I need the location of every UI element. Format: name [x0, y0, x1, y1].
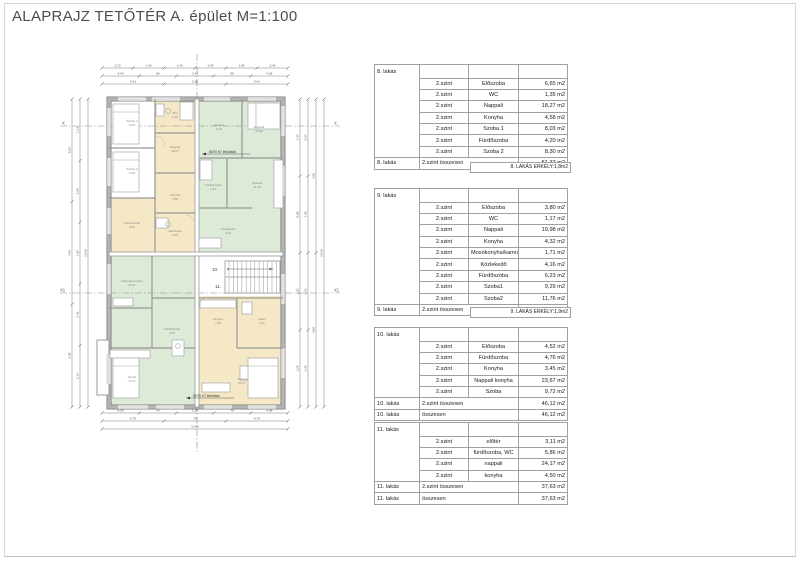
table-cell: 9,72 m2: [519, 387, 568, 398]
table-cell: 2.szint összesen: [420, 482, 519, 493]
furniture-item: [113, 152, 139, 192]
apartment-area-table: 8. lakás2.szintElőszoba6,65 m22.szintWC1…: [374, 64, 567, 170]
table-cell: Mosókonyha/kamra: [469, 248, 519, 259]
table-cell: [519, 189, 568, 203]
dimension-value: 2,88: [192, 80, 198, 84]
table-cell: előtér: [469, 436, 519, 447]
table-cell: Nappali: [469, 101, 519, 112]
table-cell: 18,27 m2: [519, 101, 568, 112]
table-cell: [375, 387, 420, 398]
table-cell: 1,71 m2: [519, 248, 568, 259]
room-area-label: 3,11: [259, 321, 265, 325]
area-table: 9. lakás2.szintElőszoba3,80 m22.szintWC1…: [374, 188, 568, 316]
dimension-value: 1,45: [238, 64, 244, 68]
table-cell: 4,16 m2: [519, 259, 568, 270]
page-title: ALAPRAJZ TETŐTÉR A. épület M=1:100: [12, 8, 297, 25]
table-cell: [469, 423, 519, 437]
table-cell: [375, 146, 420, 157]
table-cell: 10. lakás: [375, 398, 420, 409]
dimension-value: 4,65: [312, 173, 316, 179]
table-cell: [375, 352, 420, 363]
table-cell: [420, 328, 469, 342]
dimension-value: 1,45: [304, 365, 308, 371]
table-cell: [375, 293, 420, 304]
apartment-10-marker: 10.: [212, 267, 218, 272]
table-cell: Előszoba: [469, 78, 519, 89]
room-area-label: 8,03: [129, 123, 135, 127]
table-cell: 37,63 m2: [519, 493, 568, 504]
dimension-value: 5,85: [296, 211, 300, 217]
table-cell: Szoba1: [469, 282, 519, 293]
dimension-value: 70: [193, 417, 197, 421]
furniture-item: [110, 350, 150, 358]
table-cell: 4,52 m2: [519, 341, 568, 352]
table-cell: Közlekedő: [469, 259, 519, 270]
table-cell: 24,17 m2: [519, 459, 568, 470]
table-cell: 11. lakás: [375, 423, 420, 437]
table-cell: fürdőszoba, WC: [469, 447, 519, 458]
dimension-value: 1,25: [296, 365, 300, 371]
room-area-label: 19,98: [255, 129, 263, 133]
dimension-value: 3,70: [114, 64, 120, 68]
table-cell: 2.szint: [420, 375, 469, 386]
table-cell: 8,03 m2: [519, 124, 568, 135]
dimension-value: 5,41: [130, 80, 136, 84]
dimension-value: 2,43: [192, 72, 198, 76]
table-cell: Szoba 1: [469, 124, 519, 135]
table-cell: [519, 65, 568, 79]
table-cell: [375, 364, 420, 375]
table-cell: Szoba2: [469, 293, 519, 304]
table-cell: konyha: [469, 470, 519, 481]
table-cell: 2.szint: [420, 135, 469, 146]
table-cell: 8,30 m2: [519, 146, 568, 157]
table-cell: 23,67 m2: [519, 375, 568, 386]
room-area-label: 11,76: [253, 185, 261, 189]
table-cell: 2.szint: [420, 447, 469, 458]
area-table: 8. lakás2.szintElőszoba6,65 m22.szintWC1…: [374, 64, 568, 170]
table-cell: [420, 189, 469, 203]
table-cell: nappali: [469, 459, 519, 470]
dimension-value: 2,28: [76, 188, 80, 194]
table-cell: 2.szint: [420, 213, 469, 224]
table-cell: 1,17 m2: [519, 213, 568, 224]
table-cell: [375, 447, 420, 458]
table-cell: WC: [469, 89, 519, 100]
room-area-label: 6,23: [210, 187, 216, 191]
table-cell: [375, 202, 420, 213]
room-area-label: 24,17: [238, 381, 246, 385]
axis-label-x1-left: X1: [60, 288, 66, 293]
table-cell: 37,63 m2: [519, 482, 568, 493]
furniture-item: [242, 302, 252, 314]
table-cell: 2.szint: [420, 459, 469, 470]
dimension-value: 1,13: [76, 127, 80, 133]
table-cell: 2.szint: [420, 341, 469, 352]
table-cell: [375, 270, 420, 281]
table-cell: Nappali konyha: [469, 375, 519, 386]
dimension-value: 6,75: [130, 417, 136, 421]
table-cell: 2.szint: [420, 270, 469, 281]
table-cell: 2.szint: [420, 352, 469, 363]
furniture-item: [202, 383, 230, 392]
table-cell: 2.szint: [420, 436, 469, 447]
room-area-label: 4,76: [169, 331, 175, 335]
table-cell: Előszoba: [469, 202, 519, 213]
table-cell: 2.szint: [420, 387, 469, 398]
table-cell: 4,76 m2: [519, 352, 568, 363]
balcony-note: 9. LAKÁS ERKÉLY:1,9m2: [470, 307, 571, 318]
dimension-value: 4,28: [266, 72, 272, 76]
table-cell: [375, 213, 420, 224]
dimension-value: 4,65: [312, 327, 316, 333]
axis-label-x-left: X: [62, 121, 65, 126]
table-cell: 8. lakás: [375, 158, 420, 169]
dimension-value: 1,40: [145, 64, 151, 68]
balcony-note: 8. LAKÁS ERKÉLY:1,8m2: [470, 162, 571, 173]
dimension-value: 4,05: [266, 409, 272, 413]
table-cell: Fürdőszoba: [469, 135, 519, 146]
apartment-11-marker: 11.: [215, 284, 221, 289]
table-cell: [375, 341, 420, 352]
table-cell: 2.szint: [420, 282, 469, 293]
table-cell: 46,12 m2: [519, 409, 568, 420]
table-cell: Konyha: [469, 112, 519, 123]
table-cell: 19,98 m2: [519, 225, 568, 236]
table-cell: 2.szint: [420, 259, 469, 270]
table-cell: [375, 470, 420, 481]
dimension-value: 1,45: [304, 211, 308, 217]
table-cell: [469, 328, 519, 342]
room-area-label: 18,27: [171, 149, 179, 153]
table-cell: 5,86 m2: [519, 447, 568, 458]
dimension-value: 3,20: [304, 288, 308, 294]
table-cell: 3,80 m2: [519, 202, 568, 213]
dimension-value: 2,43: [269, 64, 275, 68]
table-cell: 2.szint: [420, 89, 469, 100]
table-cell: 10. lakás: [375, 409, 420, 420]
furniture-item: [113, 298, 133, 306]
table-cell: 11. lakás: [375, 493, 420, 504]
table-cell: [420, 423, 469, 437]
apartment-area-table: 10. lakás2.szintElőszoba4,52 m22.szintFü…: [374, 327, 567, 421]
table-cell: [375, 225, 420, 236]
table-cell: [469, 65, 519, 79]
dimension-value: 5,41: [254, 80, 260, 84]
table-cell: [375, 259, 420, 270]
table-cell: 2.szint: [420, 470, 469, 481]
furniture-item: [156, 218, 168, 228]
table-cell: [375, 248, 420, 259]
table-cell: 2.szint: [420, 364, 469, 375]
table-cell: [375, 101, 420, 112]
dimension-value: 6,75: [254, 417, 260, 421]
area-table: 11. lakás2.szintelőtér3,11 m22.szintfürd…: [374, 422, 568, 505]
room-area-label: 8,30: [129, 171, 135, 175]
dimension-value: 10,33: [320, 249, 324, 257]
axis-label-x-right: X: [334, 121, 337, 126]
table-cell: 2.szint összesen: [420, 398, 519, 409]
dimension-value: 4,05: [118, 409, 124, 413]
dimension-value: 70: [156, 409, 160, 413]
furniture-item: [199, 238, 221, 248]
table-cell: 11. lakás: [375, 482, 420, 493]
dimension-value: 2,43: [76, 311, 80, 317]
dimension-value: 1,35: [192, 409, 198, 413]
dimension-value: 4,44: [118, 72, 124, 76]
table-cell: 2.szint: [420, 248, 469, 259]
table-cell: 6,23 m2: [519, 270, 568, 281]
room-area-label: 9,29: [216, 127, 222, 131]
table-cell: 2.szint: [420, 112, 469, 123]
furniture-item: [200, 160, 212, 180]
table-cell: [375, 135, 420, 146]
table-cell: összesen: [420, 493, 519, 504]
dimension-value: 1,44: [296, 134, 300, 140]
table-cell: [519, 328, 568, 342]
table-cell: 46,12 m2: [519, 398, 568, 409]
room-area-label: 6,65: [172, 233, 178, 237]
table-cell: Konyha: [469, 236, 519, 247]
room-area-label: 23,67: [128, 283, 136, 287]
room-area-label: 9,72: [129, 379, 135, 383]
table-cell: [375, 78, 420, 89]
table-cell: [375, 89, 420, 100]
table-cell: 9. lakás: [375, 189, 420, 203]
furniture-item: [156, 104, 164, 116]
dimension-value: 3,20: [304, 134, 308, 140]
table-cell: Előszoba: [469, 341, 519, 352]
room-area-label: 4,20: [129, 225, 135, 229]
table-cell: 8. lakás: [375, 65, 420, 79]
dimension-value: 88: [230, 72, 234, 76]
table-cell: [375, 124, 420, 135]
room-area-label: 1,35: [172, 115, 178, 119]
table-cell: Szoba 2: [469, 146, 519, 157]
table-cell: 11,76 m2: [519, 293, 568, 304]
floor-plan: X X X1 X1 10. 11. Szoba 18,03Szoba 28,30…: [52, 48, 362, 468]
table-cell: [375, 459, 420, 470]
dimension-value: 10,33: [84, 249, 88, 257]
table-cell: 2.szint: [420, 101, 469, 112]
room-area-label: 4,50: [215, 321, 221, 325]
dimension-value: 1,13: [76, 373, 80, 379]
dimension-value: 88: [156, 72, 160, 76]
table-cell: [375, 112, 420, 123]
dimension-value: 70: [230, 409, 234, 413]
page: { "page": { "title": "ALAPRAJZ TETŐTÉR A…: [0, 0, 800, 566]
table-cell: 3,11 m2: [519, 436, 568, 447]
furniture-item: [180, 102, 193, 120]
table-cell: Konyha: [469, 364, 519, 375]
dimension-value: 13,60: [191, 425, 199, 429]
table-cell: Fürdőszoba: [469, 352, 519, 363]
dimension-value: 1,40: [176, 64, 182, 68]
table-cell: 10. lakás: [375, 328, 420, 342]
dimension-value: 3,53: [68, 147, 72, 153]
table-cell: 2.szint: [420, 78, 469, 89]
table-cell: 9,29 m2: [519, 282, 568, 293]
roof-window-annotation-text: 50/70 KT tetőablak: [209, 150, 236, 154]
table-cell: 4,32 m2: [519, 236, 568, 247]
table-cell: 2.szint: [420, 146, 469, 157]
table-cell: 2.szint: [420, 202, 469, 213]
dimension-value: 2,95: [68, 352, 72, 358]
furniture-item: [248, 358, 278, 398]
area-table: 10. lakás2.szintElőszoba4,52 m22.szintFü…: [374, 327, 568, 421]
table-cell: 2.szint: [420, 225, 469, 236]
axis-label-x1-right: X1: [334, 288, 340, 293]
apartment-area-table: 11. lakás2.szintelőtér3,11 m22.szintfürd…: [374, 422, 567, 505]
table-cell: Szoba: [469, 387, 519, 398]
room-area-label: 4,16: [225, 231, 231, 235]
roof-window-annotation-text: 50/70 KT tetőablak: [193, 394, 220, 398]
apartment-area-table: 9. lakás2.szintElőszoba3,80 m22.szintWC1…: [374, 188, 567, 316]
table-cell: 2.szint: [420, 124, 469, 135]
table-cell: [519, 423, 568, 437]
table-cell: [420, 65, 469, 79]
table-cell: 3,45 m2: [519, 364, 568, 375]
table-cell: 6,65 m2: [519, 78, 568, 89]
room-area-label: 4,58: [172, 197, 178, 201]
dimension-value: 2,45: [207, 64, 213, 68]
table-cell: [375, 436, 420, 447]
table-cell: [469, 189, 519, 203]
table-cell: 4,50 m2: [519, 470, 568, 481]
dimension-value: 1,90: [76, 250, 80, 256]
table-cell: [375, 282, 420, 293]
table-cell: [375, 236, 420, 247]
staircase: [225, 261, 280, 293]
table-cell: 2.szint: [420, 236, 469, 247]
table-cell: összesen: [420, 409, 519, 420]
table-cell: Fürdőszoba: [469, 270, 519, 281]
table-cell: [375, 375, 420, 386]
table-cell: 2.szint: [420, 293, 469, 304]
furniture-item: [200, 300, 236, 308]
table-cell: WC: [469, 213, 519, 224]
table-cell: 4,58 m2: [519, 112, 568, 123]
table-cell: 1,35 m2: [519, 89, 568, 100]
table-cell: 4,20 m2: [519, 135, 568, 146]
table-cell: 9. lakás: [375, 305, 420, 316]
furniture-item: [113, 104, 139, 144]
dimension-value: 4,43: [68, 250, 72, 256]
furniture-item: [172, 340, 184, 356]
table-cell: Nappali: [469, 225, 519, 236]
furniture-item: [274, 160, 283, 208]
dimension-value: 1,50: [296, 288, 300, 294]
